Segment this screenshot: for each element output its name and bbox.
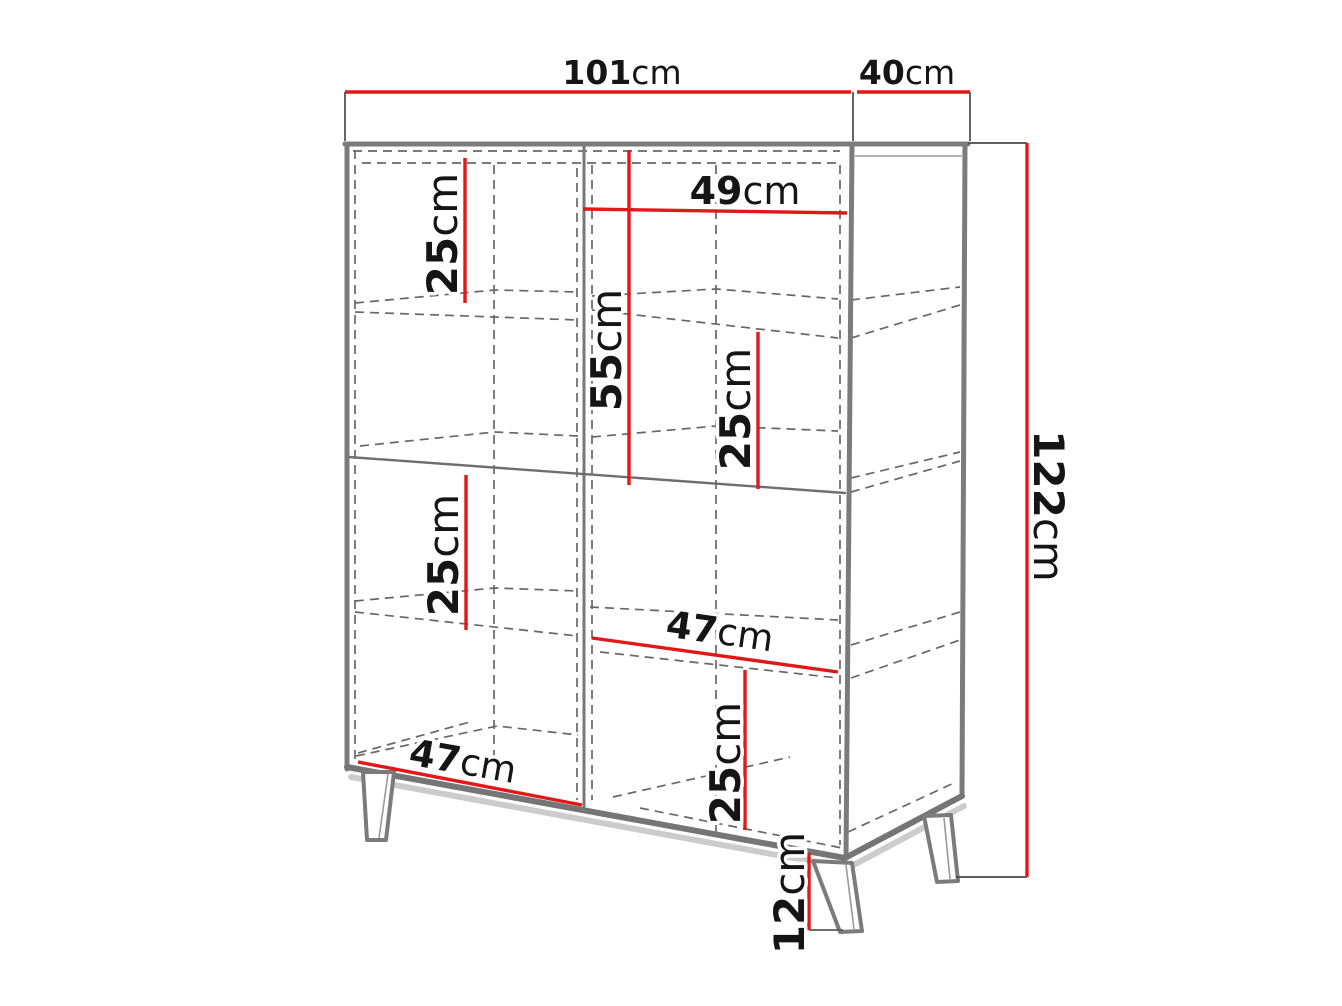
dim-label-25-bottom-right: 25cm bbox=[701, 702, 750, 824]
dim-label-depth: 40cm bbox=[859, 53, 955, 92]
dimension-diagram: 101cm 40cm 122cm 25cm 49cm 55cm 25cm 25c… bbox=[0, 0, 1342, 1006]
back-right-leg bbox=[924, 815, 958, 882]
dim-label-25-top-left: 25cm bbox=[418, 173, 467, 295]
dim-label-12-leg: 12cm bbox=[765, 832, 814, 954]
dimension-labels: 101cm 40cm 122cm 25cm 49cm 55cm 25cm 25c… bbox=[406, 53, 1073, 955]
cabinet-dimension-drawing: 101cm 40cm 122cm 25cm 49cm 55cm 25cm 25c… bbox=[0, 0, 1342, 1006]
front-right-leg bbox=[813, 861, 862, 932]
dim-label-width: 101cm bbox=[562, 53, 681, 92]
dim-label-25-upper-right: 25cm bbox=[711, 348, 760, 470]
dim-label-25-mid-left: 25cm bbox=[419, 494, 468, 616]
dim-label-49: 49cm bbox=[690, 169, 801, 213]
side-right-edge bbox=[962, 144, 965, 796]
dim-label-height: 122cm bbox=[1025, 430, 1074, 582]
dim-label-55: 55cm bbox=[582, 289, 631, 411]
front-left-leg bbox=[363, 772, 394, 840]
middle-divider bbox=[349, 457, 845, 493]
front-right-edge bbox=[846, 144, 852, 858]
